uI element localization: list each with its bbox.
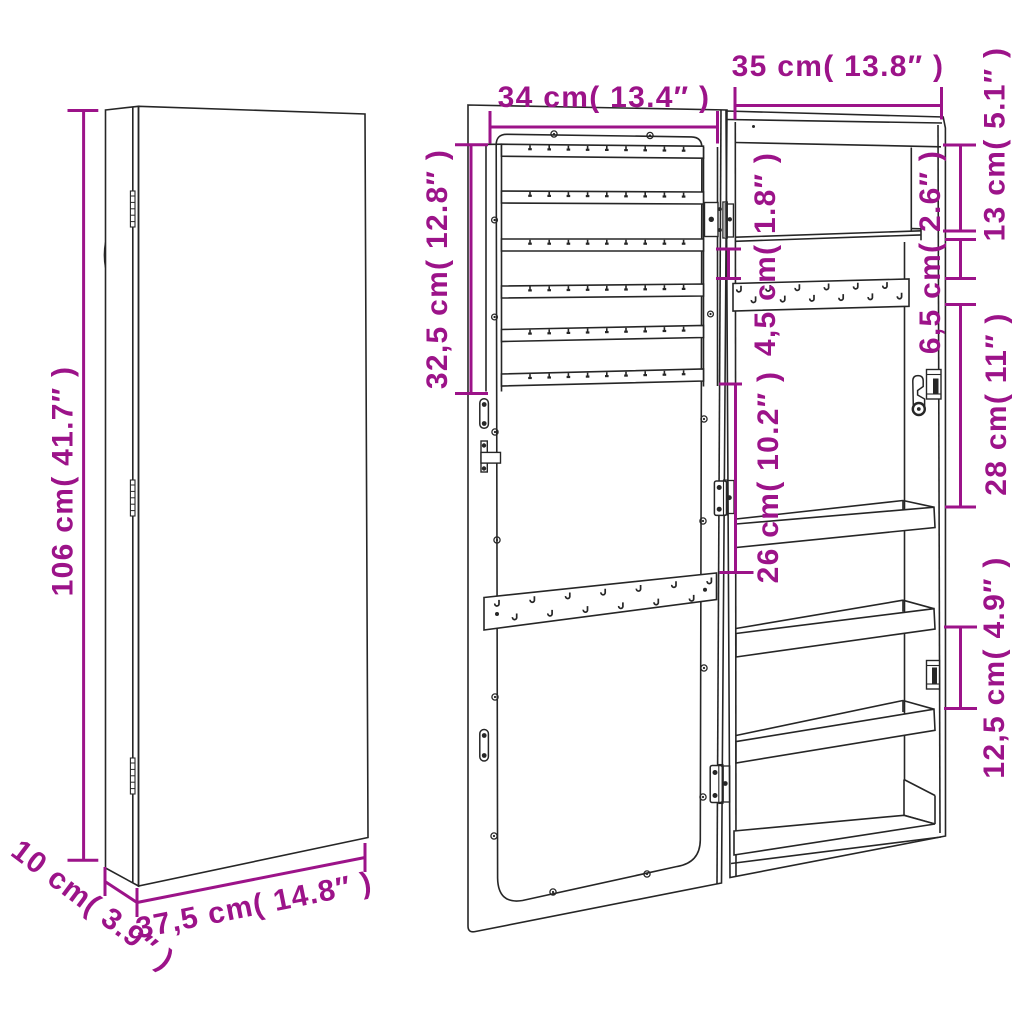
svg-text:4,5 cm( 1.8″ ): 4,5 cm( 1.8″ ) xyxy=(749,152,782,356)
svg-text:32,5 cm( 12.8″ ): 32,5 cm( 12.8″ ) xyxy=(421,149,454,389)
svg-text:6,5 cm( 2.6″ ): 6,5 cm( 2.6″ ) xyxy=(914,150,947,354)
svg-text:28 cm( 11″ ): 28 cm( 11″ ) xyxy=(980,312,1013,495)
svg-text:13 cm( 5.1″ ): 13 cm( 5.1″ ) xyxy=(979,47,1012,242)
svg-text:106 cm( 41.7″ ): 106 cm( 41.7″ ) xyxy=(47,366,80,597)
svg-text:35 cm( 13.8″ ): 35 cm( 13.8″ ) xyxy=(732,50,945,83)
svg-text:26 cm( 10.2″ ): 26 cm( 10.2″ ) xyxy=(752,371,785,584)
svg-text:12,5 cm( 4.9″ ): 12,5 cm( 4.9″ ) xyxy=(978,556,1011,778)
svg-text:34 cm( 13.4″ ): 34 cm( 13.4″ ) xyxy=(498,81,711,114)
